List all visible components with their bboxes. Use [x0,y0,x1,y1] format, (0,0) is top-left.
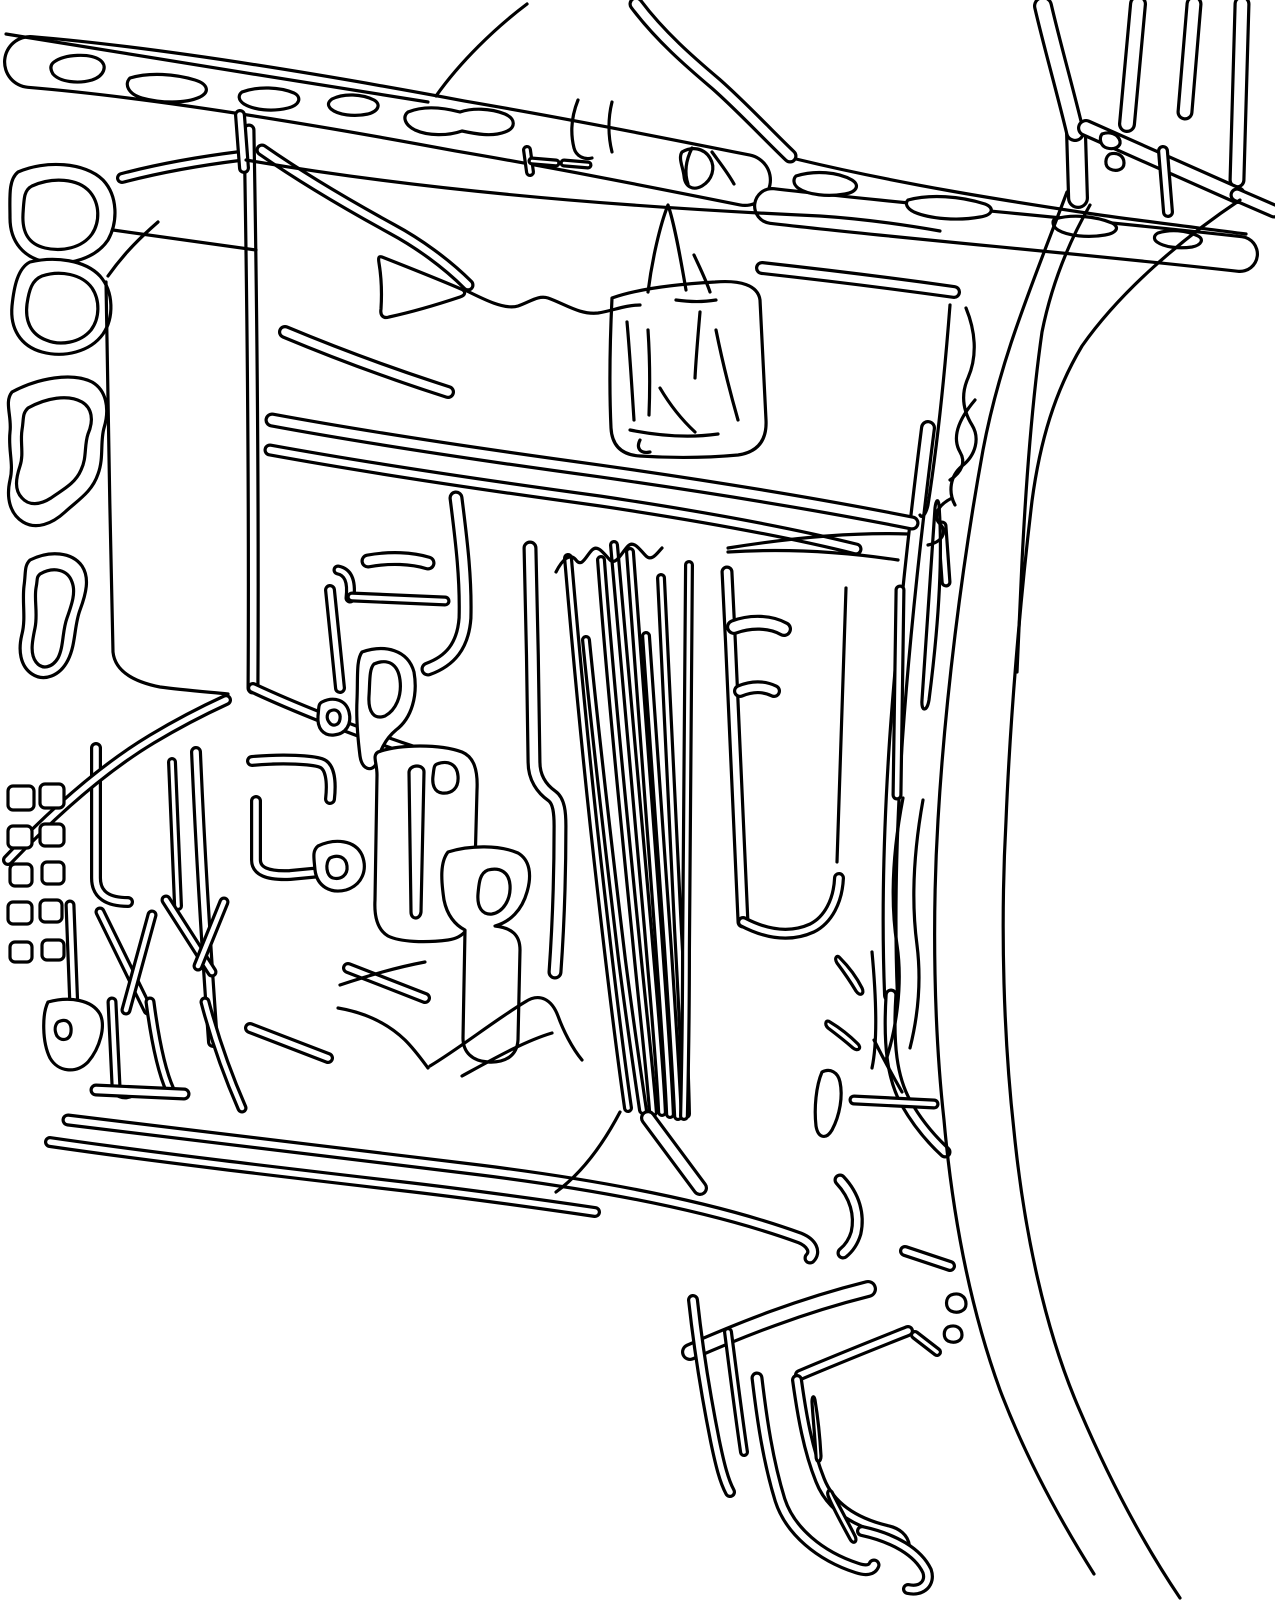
blob-p2-lens [409,766,424,918]
blob-bean-b [1106,153,1124,170]
blob-band-hole-9 [1053,216,1116,236]
corridor-core-chev-arm2 [800,1331,908,1375]
line-wedge-b [728,550,898,560]
line-spike [648,205,686,292]
line-scrib-6 [630,430,718,436]
blob-ring2-inner [27,273,98,343]
small-building-square-7 [40,900,62,922]
line-arc-340b [338,1008,428,1068]
blob-bean-d [944,1326,962,1342]
blob-p2-bowl [433,763,458,794]
line-wiggle-s [950,400,975,480]
corridor-core-valley-right-edge [636,4,790,156]
blob-band-hole-1 [51,55,104,82]
blob-donut2-hole [327,856,347,878]
blob-ring1-inner [23,180,98,249]
blob-bean-a [1100,133,1120,149]
corridor-core-chev-v2 [728,1332,744,1452]
line-scrib-8 [638,440,650,452]
line-parcel-top-edge [113,230,256,250]
corridor-core-throat [648,1118,700,1188]
blob-donut1-hole [327,710,340,725]
corridor-core-trident-prong-a [1043,6,1075,132]
line-highway-west-edge [935,192,1094,1574]
corridor-core-diag-d2 [285,332,448,392]
corridor-elbow-b1 [252,760,331,799]
corridor-core-chev-arm1 [690,1289,868,1352]
line-scrib-1 [627,322,634,420]
small-building-square-5 [42,862,64,884]
blob-braid-lens2 [826,1021,860,1050]
line-highway-mid-edge [1017,205,1090,672]
blob-band-hole-2 [127,74,206,102]
small-building-square-1 [40,784,64,808]
blob-tri-blob [44,999,103,1070]
blob-band-hole-7 [794,173,857,196]
corridor-core-trident-prong-d [1237,4,1242,180]
line-scrib-5 [716,330,738,420]
small-building-square-4 [10,864,32,886]
corridor-core-zig-bar3 [96,1090,184,1094]
line-valley-left-arc [436,4,527,96]
line-parcelr-right-edge [837,588,846,862]
line-parcel-left-edge [106,282,228,694]
blob-ramp-sliver [922,501,941,709]
blob-braid-lens1 [836,956,863,994]
blob-braid-tri [815,1070,841,1136]
corridor-core-parcelr-bar2 [740,687,774,691]
line-drawing-figure [0,0,1275,1600]
corridor-core-zig-8 [205,1002,242,1108]
corridor-core-block-road [762,268,954,292]
small-building-square-9 [42,940,64,960]
line-zigzag-after-triangle [465,290,640,313]
line-highway-east-edge [1003,200,1240,1598]
corridor-core-yard-left [530,548,560,972]
line-scrib-2 [648,330,650,415]
blob-band-hole-8 [906,197,991,220]
edge-map-drawing [0,0,1275,1600]
blob-band-hole-4 [328,95,378,115]
small-building-square-8 [10,942,32,962]
blob-tri-blob-hole [55,1020,71,1039]
small-building-square-6 [8,902,32,924]
line-spike2 [694,255,710,292]
blob-band-hole-5 [405,108,513,135]
corridor-core-corr-900 [897,590,900,795]
small-building-square-0 [8,786,34,810]
corridor-core-zig-bar1 [250,1028,328,1058]
line-wavy-b [910,800,923,1048]
line-scrib-4 [695,312,700,378]
blob-band-hole-3 [239,88,299,110]
corridor-core-bar-cigar [368,559,428,563]
blob-p3-hole [478,869,510,914]
corridor-core-band-stub-1 [240,115,244,168]
line-scrib-7 [676,300,716,302]
corridor-parcelr-hook [743,878,839,934]
small-building-square-3 [40,824,64,846]
page [0,0,1275,1600]
blob-bean-c [947,1294,967,1312]
line-braid-line-a [872,952,876,1068]
line-scrib-3 [660,388,695,432]
small-building-square-2 [8,826,32,848]
